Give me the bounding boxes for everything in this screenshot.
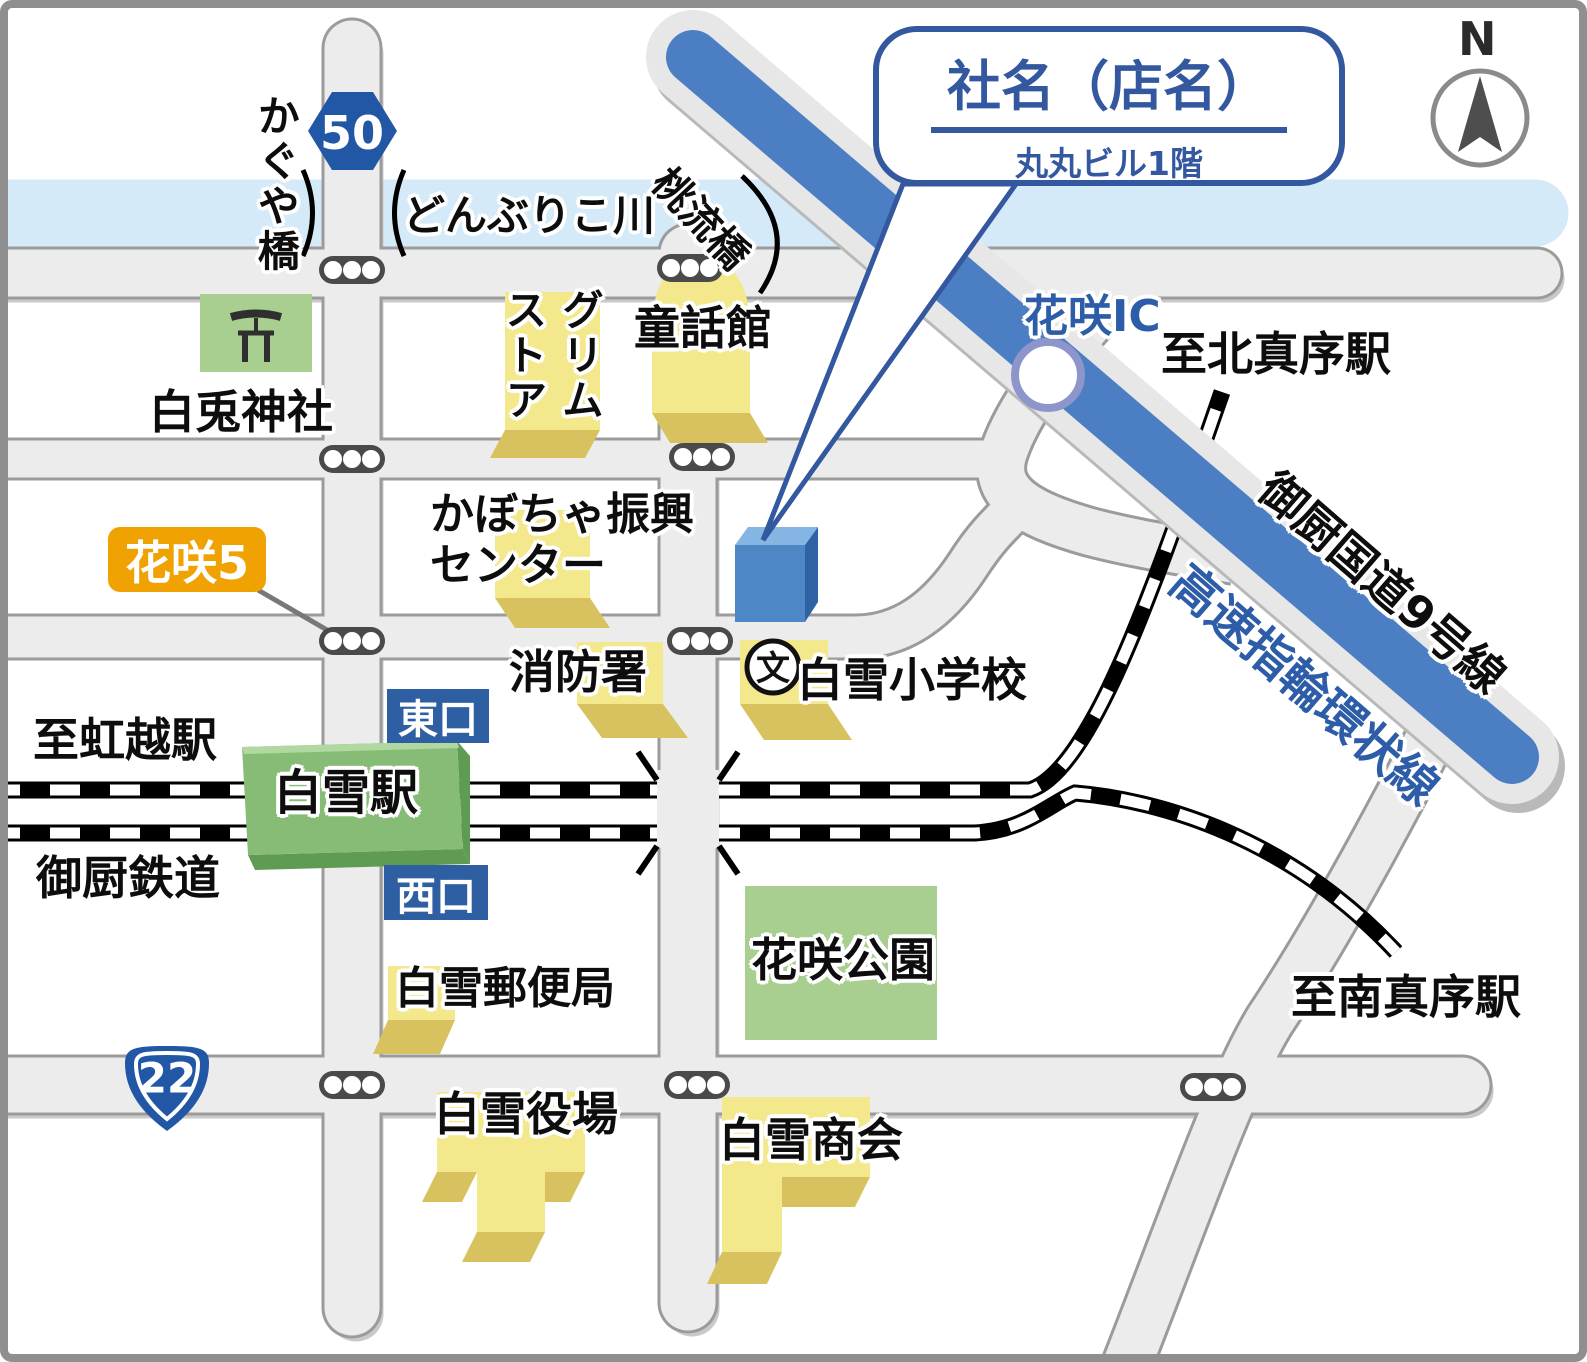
to-north-station-label: 至北真序駅	[1161, 328, 1391, 381]
to-west-station-label: 至虹越駅	[33, 714, 217, 767]
route-shield-50: 50	[308, 92, 397, 170]
station-name-label: 白雪駅	[274, 766, 418, 821]
kaguya-bridge-label: かぐや橋	[251, 94, 299, 274]
svg-text:22: 22	[138, 1054, 196, 1103]
interchange-label: 花咲IC	[1024, 292, 1161, 343]
west-exit-badge: 西口	[384, 865, 488, 920]
interchange-circle	[1015, 342, 1081, 408]
traffic-light-icon	[319, 1071, 385, 1099]
hanasaki5-badge: 花咲5	[108, 527, 266, 592]
svg-text:文: 文	[756, 649, 790, 689]
town-hall-label: 白雪役場	[434, 1088, 618, 1141]
traffic-light-icon	[319, 627, 385, 655]
traffic-light-icon	[319, 445, 385, 473]
target-building	[735, 527, 818, 622]
grimm-store-label: グリム ストア	[494, 288, 607, 423]
to-south-station-label: 至南真序駅	[1291, 971, 1521, 1024]
compass-north-label: N	[1458, 12, 1497, 66]
access-map: 文 50 22 どんぶりこ川 かぐや橋 桃流橋 童話館 グリム ストア 白兎神社…	[0, 0, 1587, 1362]
traffic-light-icon	[1180, 1073, 1246, 1101]
school-symbol-icon: 文	[747, 641, 799, 693]
elementary-school-label: 白雪小学校	[797, 654, 1027, 707]
fairy-tale-hall-label: 童話館	[634, 302, 772, 355]
svg-text:50: 50	[320, 106, 384, 160]
river-label: どんぶりこ川	[403, 192, 655, 240]
traffic-light-icon	[669, 443, 735, 471]
callout-subtitle: 丸丸ビル1階	[879, 137, 1339, 185]
traffic-light-icon	[667, 627, 733, 655]
fire-station-label: 消防署	[509, 646, 647, 699]
post-office-label: 白雪郵便局	[395, 964, 615, 1015]
shokai-label: 白雪商会	[719, 1114, 903, 1167]
pumpkin-center-label: かぼちゃ振興 センター	[430, 490, 694, 591]
railway-company-label: 御厨鉄道	[36, 852, 220, 905]
park-label: 花咲公園	[751, 934, 935, 987]
traffic-light-icon	[664, 1071, 730, 1099]
east-exit-badge: 東口	[387, 689, 489, 743]
shrine-label: 白兎神社	[149, 386, 333, 439]
callout-box: 社名（店名） 丸丸ビル1階	[873, 26, 1345, 186]
traffic-light-icon	[319, 256, 385, 284]
callout-title: 社名（店名）	[879, 42, 1339, 121]
callout-rule	[931, 127, 1287, 133]
compass-icon	[1433, 71, 1527, 165]
